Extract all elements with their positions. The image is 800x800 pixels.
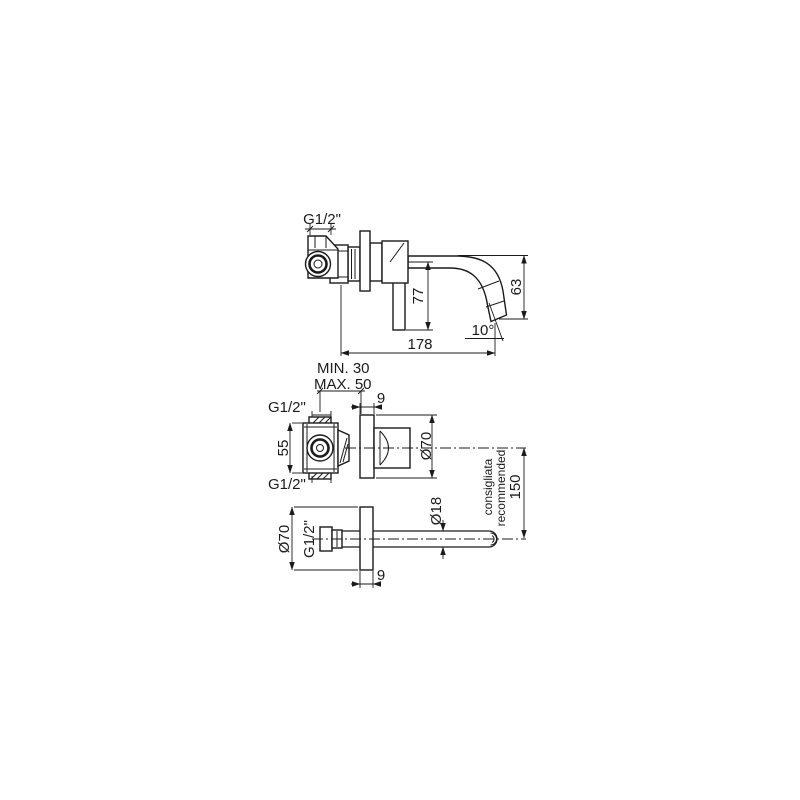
dim-spout-reach: 178 [407, 336, 432, 353]
dim-spout-angle: 10° [472, 322, 495, 339]
valve-circle-ring [312, 440, 329, 457]
body-block-right [382, 241, 408, 283]
dim-recommended-distance: 150 [507, 474, 524, 499]
dim-top-thread-label: G1/2" [268, 399, 306, 416]
dim-spout-plate-diameter: Ø70 [276, 525, 293, 553]
dim-body-height: 55 [275, 440, 292, 457]
dim-handle-length: 77 [410, 288, 427, 305]
dim-plate-diameter: Ø70 [418, 432, 435, 460]
dim-plate-thickness-top: 9 [377, 390, 385, 407]
dim-tube-diameter: Ø18 [428, 497, 445, 525]
dim-min-wall-depth: MIN. 30 [317, 360, 370, 377]
front-view: MIN. 30 MAX. 50 9 G1/2" [268, 360, 526, 538]
dim-inlet-thread-label: G1/2" [303, 211, 341, 228]
body-block-left [370, 243, 382, 281]
wall-plate-side [360, 231, 370, 291]
dim-max-wall-depth: MAX. 50 [314, 376, 372, 393]
lever-handle [393, 282, 405, 330]
elbow-port-ring [310, 256, 327, 273]
wall-plate-front [360, 415, 374, 478]
dim-bottom-thread-label: G1/2" [268, 476, 306, 493]
dim-spout-drop: 63 [508, 279, 525, 296]
dim-plate-thickness-bottom: 9 [377, 567, 385, 584]
shaft [348, 247, 360, 281]
wall-plate-spout [360, 507, 373, 570]
note-consigliata: consigliata [481, 458, 495, 515]
note-recommended: recommended [494, 450, 508, 527]
side-view: G1/2" 77 63 10° 178 [303, 211, 528, 356]
drawing-svg: G1/2" 77 63 10° 178 MIN. 30 MAX. 50 [0, 0, 800, 800]
faucet-technical-drawing: G1/2" 77 63 10° 178 MIN. 30 MAX. 50 [0, 0, 800, 800]
